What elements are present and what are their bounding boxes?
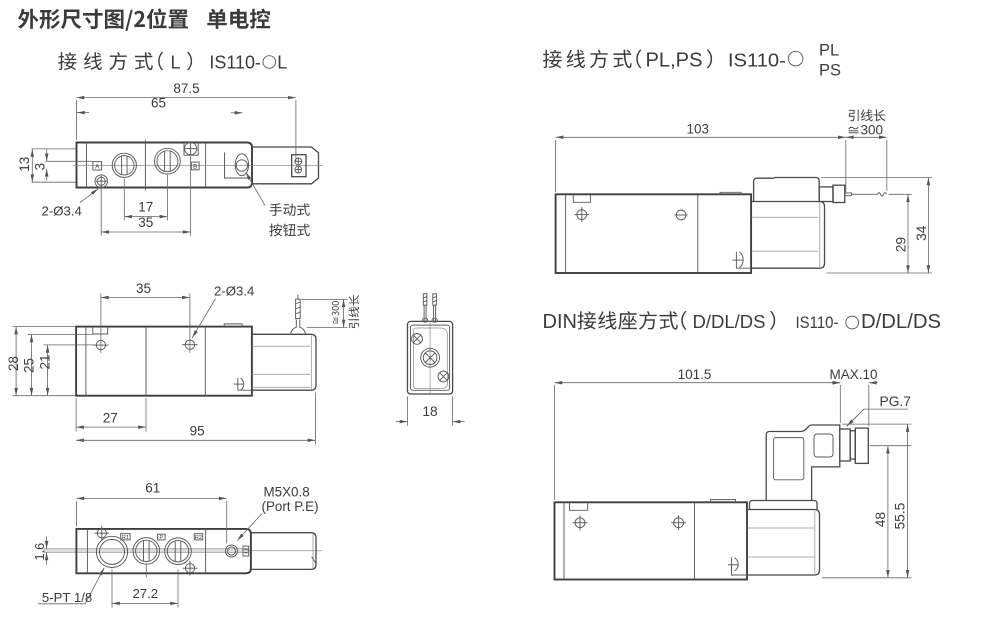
svg-text:17: 17 <box>138 199 153 214</box>
svg-text:34: 34 <box>914 225 929 241</box>
svg-text:PG.7: PG.7 <box>880 394 911 409</box>
svg-text:IS110-: IS110- <box>796 314 839 332</box>
svg-text:(Port P.E): (Port P.E) <box>262 499 319 514</box>
svg-text:B: B <box>193 164 197 171</box>
svg-text:R1: R1 <box>122 535 129 541</box>
svg-text:M5X0.8: M5X0.8 <box>264 484 310 499</box>
svg-text:61: 61 <box>145 481 160 496</box>
svg-text:48: 48 <box>873 512 888 528</box>
svg-text:25: 25 <box>22 358 37 373</box>
svg-text:MAX.10: MAX.10 <box>830 367 878 382</box>
svg-text:D/DL/DS: D/DL/DS <box>693 311 766 332</box>
svg-text:2-Ø3.4: 2-Ø3.4 <box>214 283 254 298</box>
svg-text:IS110-: IS110- <box>728 50 786 71</box>
svg-text:A: A <box>95 163 100 170</box>
svg-text:IS110-: IS110- <box>209 52 261 73</box>
svg-text:3: 3 <box>32 163 47 171</box>
svg-text:L: L <box>171 53 181 73</box>
svg-text:PS: PS <box>819 61 841 79</box>
svg-text:18: 18 <box>422 404 438 419</box>
svg-text:5-PT 1/8: 5-PT 1/8 <box>42 590 92 605</box>
svg-text:95: 95 <box>190 424 205 439</box>
svg-text:29: 29 <box>894 237 909 253</box>
svg-text:27: 27 <box>103 410 118 425</box>
svg-text:DIN: DIN <box>543 311 577 333</box>
svg-text:35: 35 <box>136 281 151 296</box>
svg-text:PL,PS: PL,PS <box>646 50 703 72</box>
svg-text:1.6: 1.6 <box>32 543 47 561</box>
svg-text:35: 35 <box>138 215 153 230</box>
svg-text:2-Ø3.4: 2-Ø3.4 <box>42 203 82 218</box>
svg-text:28: 28 <box>6 356 21 371</box>
svg-text:R2: R2 <box>195 535 202 541</box>
svg-text:55.5: 55.5 <box>893 502 908 529</box>
svg-text:21: 21 <box>38 354 53 369</box>
svg-text:P: P <box>159 535 163 541</box>
svg-text:103: 103 <box>687 122 710 137</box>
svg-text:65: 65 <box>151 96 166 111</box>
svg-text:D/DL/DS: D/DL/DS <box>861 310 941 333</box>
svg-text:13: 13 <box>17 157 32 172</box>
svg-text:300: 300 <box>861 122 884 137</box>
svg-text:L: L <box>277 53 287 73</box>
svg-text:PL: PL <box>819 41 839 59</box>
svg-text:101.5: 101.5 <box>678 367 712 382</box>
svg-text:27.2: 27.2 <box>132 586 158 601</box>
svg-text:87.5: 87.5 <box>173 81 199 96</box>
